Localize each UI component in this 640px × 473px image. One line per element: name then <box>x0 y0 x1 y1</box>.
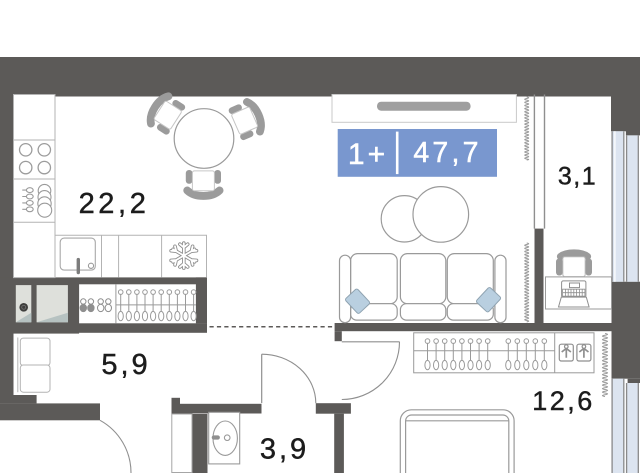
svg-text:3,1: 3,1 <box>558 163 597 191</box>
svg-text:1+: 1+ <box>348 138 388 171</box>
svg-text:22,2: 22,2 <box>79 188 150 220</box>
svg-text:47,7: 47,7 <box>413 137 481 169</box>
svg-text:5,9: 5,9 <box>101 349 150 381</box>
svg-text:12,6: 12,6 <box>532 386 595 416</box>
svg-text:3,9: 3,9 <box>260 434 309 466</box>
